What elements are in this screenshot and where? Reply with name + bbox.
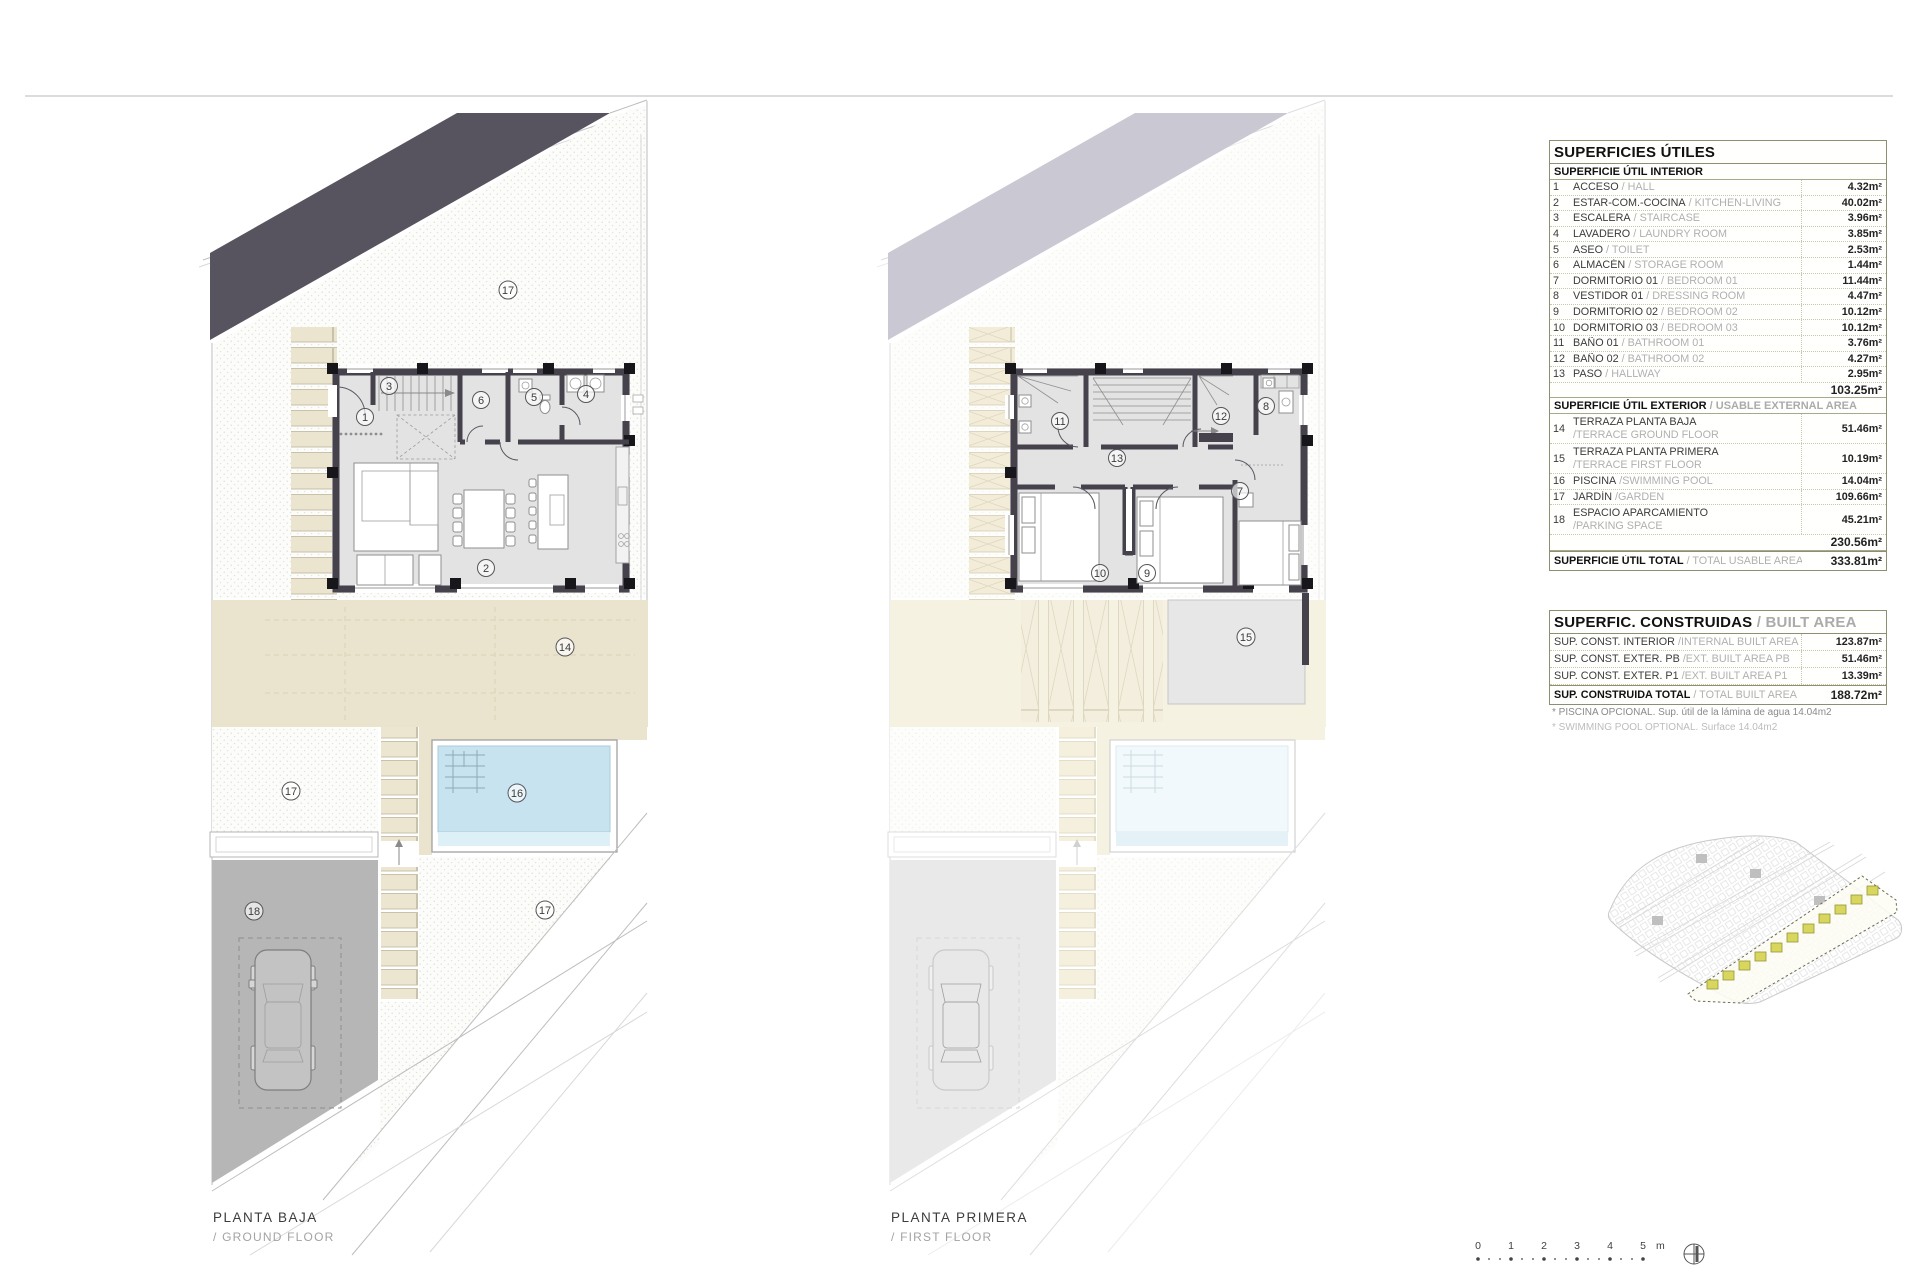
footnote-es: * PISCINA OPCIONAL. Sup. útil de la lámi… [1552,705,1832,720]
scale-tick-label: 3 [1574,1240,1580,1252]
footnote-en: * SWIMMING POOL OPTIONAL. Surface 14.04m… [1552,720,1832,735]
ground-floor-plan: 1 2 3 4 5 6 17 14 17 16 18 17 [195,95,665,1260]
area-row: 3ESCALERA/ STAIRCASE3.96m² [1550,211,1886,227]
scale-tick-label: 1 [1508,1240,1514,1252]
area-row: 16PISCINA/SWIMMING POOL14.04m² [1550,474,1886,490]
ground-plan-title: PLANTA BAJA [213,1210,318,1225]
area-number: 15 [1240,632,1252,644]
site-key-plan [1600,832,1910,1007]
area-row: 17JARDÍN/GARDEN109.66m² [1550,490,1886,506]
pergola-slats [1021,600,1163,722]
garden-left [212,727,378,832]
area-row: 14TERRAZA PLANTA BAJA/TERRACE GROUND FLO… [1550,414,1886,444]
first-floor-plan: 7 8 9 10 11 12 13 15 [873,95,1343,1260]
swimming-pool-ghost [1110,740,1295,852]
area-row: 9DORMITORIO 02/ BEDROOM 0210.12m² [1550,305,1886,321]
scale-bar: 0 1 2 3 4 5 m [1462,1236,1732,1272]
scale-ticks: 0 1 2 3 4 5 m [1475,1240,1665,1261]
scale-tick-label: 0 [1475,1240,1481,1252]
drawing-sheet: 1 2 3 4 5 6 17 14 17 16 18 17 [0,0,1920,1280]
area-number: 17 [285,786,297,798]
built-total-row: SUP. CONSTRUIDA TOTAL/ TOTAL BUILT AREA1… [1550,685,1886,704]
area-number: 17 [502,285,514,297]
usable-table-title: SUPERFICIES ÚTILES [1550,141,1886,164]
exterior-header: SUPERFICIE ÚTIL EXTERIOR / USABLE EXTERN… [1550,398,1886,414]
interior-header-text: SUPERFICIE ÚTIL INTERIOR [1554,166,1703,178]
garden-stairs-lower [381,867,418,999]
ground-plan-subtitle: / GROUND FLOOR [213,1230,334,1244]
area-row: 13PASO/ HALLWAY2.95m² [1550,367,1886,383]
area-row: 6ALMACÉN/ STORAGE ROOM1.44m² [1550,258,1886,274]
room-number: 1 [362,412,368,424]
area-row: 8VESTIDOR 01/ DRESSING ROOM4.47m² [1550,289,1886,305]
room-number: 5 [531,392,537,404]
area-row: 15TERRAZA PLANTA PRIMERA/TERRACE FIRST F… [1550,444,1886,474]
scale-tick-label: 2 [1541,1240,1547,1252]
first-plan-title: PLANTA PRIMERA [891,1210,1028,1225]
area-row: 12BAÑO 02/ BATHROOM 024.27m² [1550,352,1886,368]
footnotes: * PISCINA OPCIONAL. Sup. útil de la lámi… [1552,705,1832,735]
room-number: 3 [386,381,392,393]
terrace-ground [212,600,648,727]
scale-tick-label: 4 [1607,1240,1613,1252]
usable-areas-table: SUPERFICIES ÚTILES SUPERFICIE ÚTIL INTER… [1549,140,1887,571]
built-areas-table: SUPERFIC. CONSTRUIDAS / BUILT AREA SUP. … [1549,610,1887,705]
built-title-en: / BUILT AREA [1757,614,1857,631]
interior-header: SUPERFICIE ÚTIL INTERIOR [1550,164,1886,180]
kitchen-counter [616,447,629,563]
area-number: 18 [248,906,260,918]
first-plan-subtitle: / FIRST FLOOR [891,1230,992,1244]
sofa [354,463,441,585]
room-number: 10 [1094,568,1106,580]
exterior-header-en: / USABLE EXTERNAL AREA [1710,400,1857,412]
built-row: SUP. CONST. EXTER. P1/EXT. BUILT AREA P1… [1550,668,1886,685]
bed-bedroom3 [1019,493,1099,581]
planter-wall [210,832,378,857]
area-number: 14 [559,642,571,654]
room-number: 11 [1054,416,1065,428]
room-number: 7 [1237,486,1243,498]
area-number: 16 [511,788,523,800]
room-number: 4 [583,389,589,401]
area-row: 7DORMITORIO 01/ BEDROOM 0111.44m² [1550,274,1886,290]
scale-tick-label: 5 [1640,1240,1646,1252]
area-row: 11BAÑO 01/ BATHROOM 013.76m² [1550,336,1886,352]
room-number: 13 [1111,453,1123,465]
room-number: 8 [1263,401,1269,413]
built-table-title: SUPERFIC. CONSTRUIDAS / BUILT AREA [1550,611,1886,634]
area-row: 4LAVADERO/ LAUNDRY ROOM3.85m² [1550,227,1886,243]
scale-unit: m [1656,1240,1665,1252]
room-number: 2 [483,563,489,575]
area-row: 1ACCESO/ HALL4.32m² [1550,180,1886,196]
interior-subtotal-row: 103.25m² [1550,383,1886,399]
exterior-header-es: SUPERFICIE ÚTIL EXTERIOR [1554,400,1707,412]
area-number: 17 [539,905,551,917]
area-row: 18ESPACIO APARCAMIENTO/PARKING SPACE45.2… [1550,505,1886,535]
kitchen-island [529,475,568,549]
area-row: 2ESTAR-COM.-COCINA/ KITCHEN-LIVING40.02m… [1550,196,1886,212]
garden-stairs-upper [381,727,418,841]
terrace-first-floor [1168,593,1309,704]
ground-site-plan [199,100,648,1255]
usable-total-row: SUPERFICIE ÚTIL TOTAL/ TOTAL USABLE AREA… [1550,551,1886,570]
exterior-subtotal-row: 230.56m² [1550,535,1886,551]
area-row: 5ASEO/ TOILET2.53m² [1550,242,1886,258]
north-indicator-icon [1684,1244,1704,1264]
area-row: 10DORMITORIO 03/ BEDROOM 0310.12m² [1550,320,1886,336]
entry-cabinet-dots [340,433,383,436]
room-number: 9 [1144,568,1150,580]
built-row: SUP. CONST. INTERIOR/INTERNAL BUILT AREA… [1550,634,1886,651]
room-number: 6 [478,395,484,407]
built-title-es: SUPERFIC. CONSTRUIDAS [1554,614,1752,631]
room-number: 12 [1215,411,1227,423]
built-row: SUP. CONST. EXTER. PB/EXT. BUILT AREA PB… [1550,651,1886,668]
